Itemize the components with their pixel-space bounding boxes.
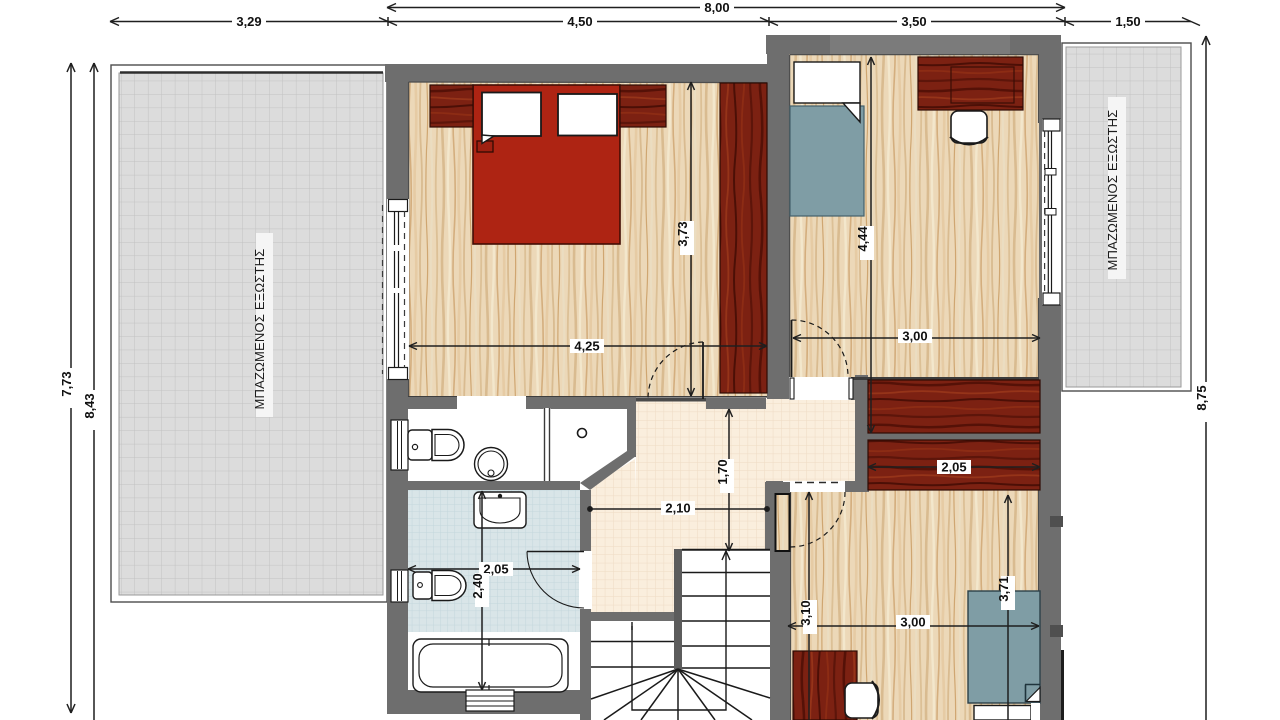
- svg-text:1,50: 1,50: [1115, 14, 1140, 29]
- svg-text:8,75: 8,75: [1194, 385, 1209, 410]
- svg-text:4,50: 4,50: [567, 14, 592, 29]
- svg-text:7,73: 7,73: [59, 371, 74, 396]
- svg-text:ΜΠΑΖΩΜΕΝΟΣ ΕΞΩΣΤΗΣ: ΜΠΑΖΩΜΕΝΟΣ ΕΞΩΣΤΗΣ: [252, 248, 267, 409]
- svg-text:ΜΠΑΖΩΜΕΝΟΣ ΕΞΩΣΤΗΣ: ΜΠΑΖΩΜΕΝΟΣ ΕΞΩΣΤΗΣ: [1105, 109, 1120, 270]
- svg-text:3,50: 3,50: [901, 14, 926, 29]
- svg-text:3,00: 3,00: [902, 329, 927, 344]
- svg-text:3,00: 3,00: [900, 615, 925, 630]
- svg-text:4,44: 4,44: [855, 226, 870, 252]
- svg-text:3,10: 3,10: [798, 600, 813, 625]
- svg-text:1,70: 1,70: [715, 459, 730, 484]
- svg-text:3,29: 3,29: [236, 14, 261, 29]
- svg-text:8,43: 8,43: [82, 393, 97, 418]
- svg-text:3,73: 3,73: [675, 221, 690, 246]
- svg-text:2,10: 2,10: [665, 501, 690, 516]
- svg-text:8,00: 8,00: [704, 0, 729, 15]
- svg-text:4,25: 4,25: [574, 339, 599, 354]
- svg-text:2,40: 2,40: [470, 573, 485, 598]
- svg-text:2,05: 2,05: [941, 460, 966, 475]
- svg-text:3,71: 3,71: [996, 576, 1011, 601]
